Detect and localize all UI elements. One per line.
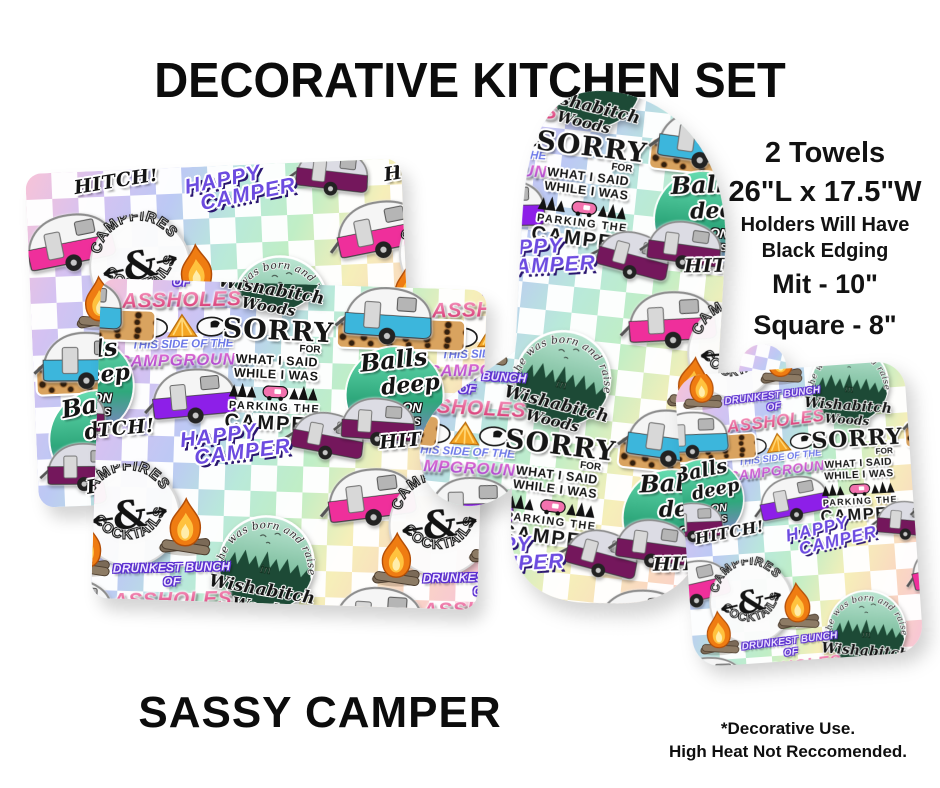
cocktails-arc-text: COCKTAILS	[385, 609, 440, 632]
hitch-text: HITCH!	[72, 163, 160, 199]
pot-holder-pattern: HITCH! HAPPY CAMPER CAMPFIRES COCKTAILS	[674, 360, 924, 667]
teal-camper-illustration	[91, 565, 120, 610]
campers-and-tent-illustration	[450, 119, 543, 150]
drunkest-line1: DRUNKEST BUNCH OF	[406, 365, 529, 399]
drunkest-line2: ASSHOLES	[406, 393, 527, 423]
drunkest-line3: THIS SIDE OF THE	[444, 145, 546, 162]
hitch-text: HITCH!	[385, 520, 430, 543]
campfire-illustration	[770, 580, 824, 633]
pink-camper-illustration	[584, 579, 691, 632]
campfire-illustration	[153, 496, 217, 558]
teal-camper-leopard-sticker	[896, 391, 924, 447]
product-name: SASSY CAMPER	[55, 688, 585, 738]
happy-camper-text: HAPPY CAMPER	[183, 158, 297, 216]
right-arrow-icon	[415, 613, 436, 622]
cocktails-arc-text: COCKTAILS	[409, 237, 414, 288]
teal-camper-leopard-sticker	[674, 654, 776, 667]
left-arrow-icon	[413, 253, 415, 265]
pattern-tile: HITCH! HAPPY CAMPER CAMPFIRES COCKTAILS	[385, 213, 638, 544]
wishabitch-in-text: in	[259, 562, 272, 577]
pattern-tile: HITCH! HAPPY CAMPER CAMPFIRES COCKTAILS	[385, 511, 607, 631]
svg-text:She was born and raised: She was born and raised	[471, 608, 597, 631]
leopard-print-banner	[922, 661, 924, 668]
svg-text:COCKTAILS: COCKTAILS	[385, 609, 440, 632]
happy-camper-text: HAPPY CAMPER	[454, 533, 565, 577]
teal-camper-illustration	[674, 649, 750, 668]
wishabitch-woods-badge: She was born and raised in Wishabitch Wo…	[461, 608, 600, 631]
balls-text: Balls	[670, 169, 739, 200]
hitch-text: HITCH!	[382, 158, 415, 186]
balls-deep-sticker: Balls deep ON THIS	[913, 438, 923, 529]
disclaimer-block: *Decorative Use. High Heat Not Reccomend…	[628, 718, 940, 764]
leopard-print-banner	[91, 608, 145, 610]
on-text: ON	[401, 192, 422, 209]
wishabitch-arc-text: She was born and raised	[471, 608, 597, 631]
happy-camper-line2: CAMPER	[498, 254, 596, 278]
pot-holder-body: HITCH! HAPPY CAMPER CAMPFIRES COCKTAILS	[674, 360, 924, 667]
drunkest-line1: DRUNKEST BUNCH OF	[746, 99, 779, 133]
happy-camper-text: HAPPY CAMPER	[179, 418, 292, 470]
ampersand-text: &	[411, 296, 448, 343]
disclaimer-line1: *Decorative Use.	[628, 718, 940, 741]
happy-camper-line2: CAMPER	[467, 552, 565, 576]
right-arrow-icon	[447, 314, 468, 323]
pattern-tiles: HITCH! HAPPY CAMPER CAMPFIRES COCKTAILS	[674, 360, 924, 667]
happy-camper-text: HAPPY CAMPER	[485, 234, 596, 278]
wishabitch-in-text: in	[844, 385, 854, 396]
leopard-print-banner	[385, 106, 470, 148]
hitch-text: HITCH!	[91, 415, 156, 445]
balls-deep-circle	[915, 440, 924, 524]
wishabitch-woods-text: Woods	[841, 656, 887, 668]
svg-text:COCKTAILS: COCKTAILS	[409, 237, 414, 288]
pot-holder: HITCH! HAPPY CAMPER CAMPFIRES COCKTAILS	[674, 360, 924, 667]
pattern-tile: HITCH! HAPPY CAMPER CAMPFIRES COCKTAILS	[91, 416, 332, 610]
drunkest-line2: ASSHOLES	[437, 95, 558, 125]
disclaimer-line2: High Heat Not Reccomended.	[628, 741, 940, 764]
teal-camper-leopard-sticker	[913, 637, 924, 668]
hitch-text: HITCH!	[684, 254, 770, 277]
teal-camper-illustration	[916, 631, 924, 668]
teal-camper-illustration	[899, 385, 924, 443]
wishabitch-in-text: in	[862, 630, 872, 641]
pattern-tile: HITCH! HAPPY CAMPER CAMPFIRES COCKTAILS	[674, 511, 924, 667]
